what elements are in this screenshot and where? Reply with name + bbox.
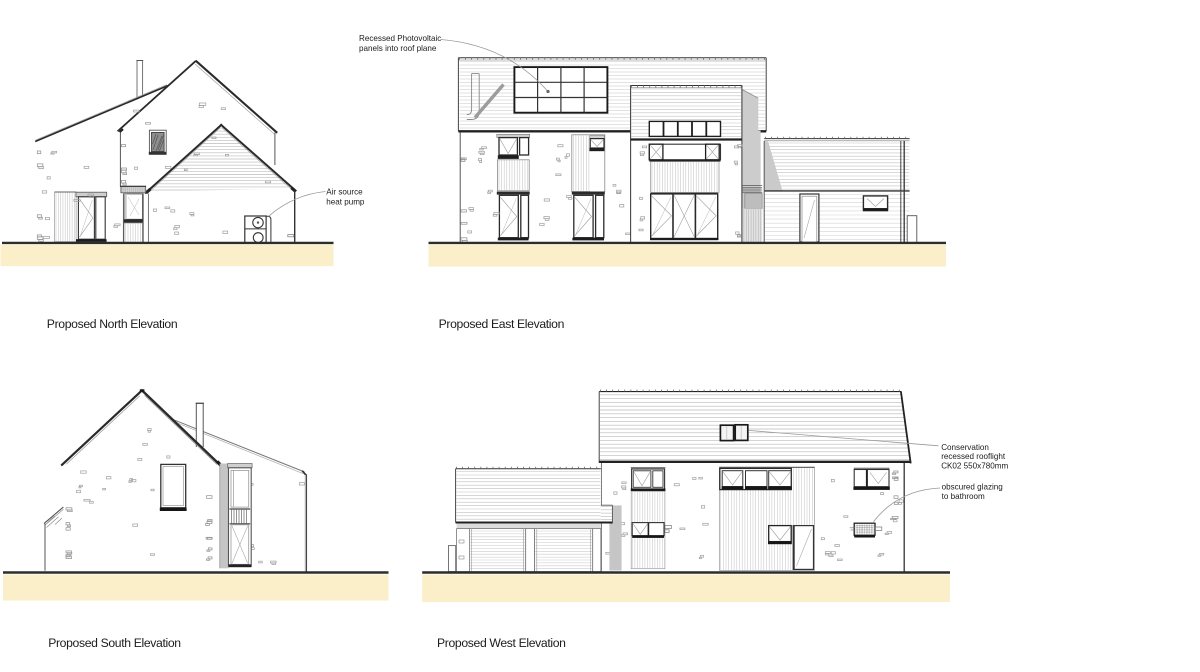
svg-text:Proposed West Elevation: Proposed West Elevation	[437, 636, 566, 650]
svg-text:Air source: Air source	[326, 188, 363, 197]
svg-text:recessed rooflight: recessed rooflight	[941, 452, 1006, 461]
svg-text:Proposed South Elevation: Proposed South Elevation	[48, 636, 181, 650]
svg-text:obscured glazing: obscured glazing	[942, 483, 1003, 492]
svg-text:to bathroom: to bathroom	[942, 492, 985, 501]
svg-text:Proposed North Elevation: Proposed North Elevation	[47, 317, 177, 331]
svg-text:Recessed Photovoltaic: Recessed Photovoltaic	[359, 34, 441, 43]
svg-text:Conservation: Conservation	[941, 443, 989, 452]
svg-text:heat pump: heat pump	[326, 198, 365, 207]
svg-text:panels into roof plane: panels into roof plane	[359, 44, 437, 53]
svg-text:CK02 550x780mm: CK02 550x780mm	[941, 462, 1008, 471]
svg-text:Proposed East Elevation: Proposed East Elevation	[439, 317, 564, 331]
